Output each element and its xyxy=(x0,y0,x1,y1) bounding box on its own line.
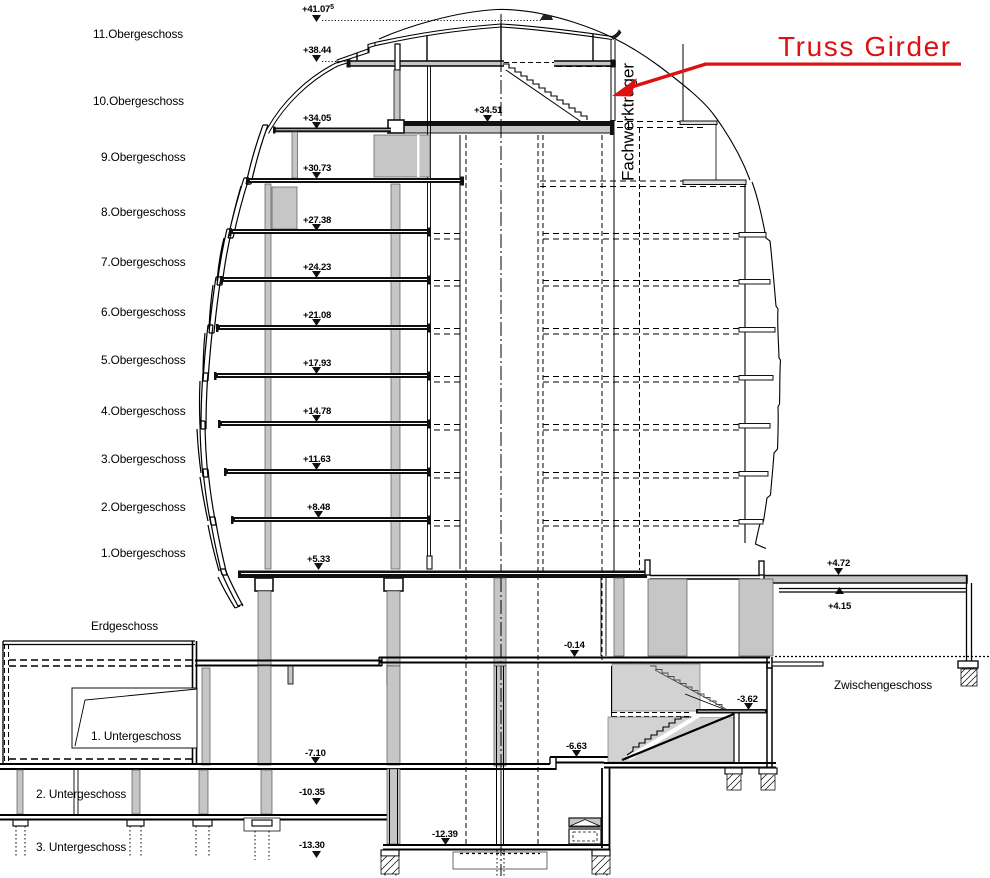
svg-text:Truss Girder: Truss Girder xyxy=(778,31,952,62)
svg-text:-13.30: -13.30 xyxy=(299,840,325,851)
svg-text:5.Obergeschoss: 5.Obergeschoss xyxy=(101,353,186,367)
svg-text:1.Obergeschoss: 1.Obergeschoss xyxy=(101,546,186,560)
svg-text:11.Obergeschoss: 11.Obergeschoss xyxy=(93,27,183,41)
svg-text:2. Untergeschoss: 2. Untergeschoss xyxy=(36,787,126,801)
svg-text:Zwischengeschoss: Zwischengeschoss xyxy=(834,678,932,692)
svg-text:3. Untergeschoss: 3. Untergeschoss xyxy=(36,840,126,854)
svg-text:-0.14: -0.14 xyxy=(564,640,586,651)
svg-text:1. Untergeschoss: 1. Untergeschoss xyxy=(91,729,181,743)
svg-text:+4.72: +4.72 xyxy=(827,558,850,569)
svg-text:3.Obergeschoss: 3.Obergeschoss xyxy=(101,452,186,466)
svg-text:2.Obergeschoss: 2.Obergeschoss xyxy=(101,500,186,514)
svg-text:4.Obergeschoss: 4.Obergeschoss xyxy=(101,404,186,418)
svg-text:Erdgeschoss: Erdgeschoss xyxy=(91,619,158,633)
svg-text:+41.075: +41.075 xyxy=(302,4,334,15)
svg-text:-10.35: -10.35 xyxy=(299,787,326,798)
svg-text:+38.44: +38.44 xyxy=(303,45,332,56)
svg-text:7.Obergeschoss: 7.Obergeschoss xyxy=(101,255,186,269)
svg-text:+4.15: +4.15 xyxy=(828,601,852,612)
svg-text:9.Obergeschoss: 9.Obergeschoss xyxy=(101,150,186,164)
svg-text:10.Obergeschoss: 10.Obergeschoss xyxy=(93,94,184,108)
svg-text:6.Obergeschoss: 6.Obergeschoss xyxy=(101,305,186,319)
svg-text:8.Obergeschoss: 8.Obergeschoss xyxy=(101,205,186,219)
svg-text:+34.51: +34.51 xyxy=(474,105,503,116)
